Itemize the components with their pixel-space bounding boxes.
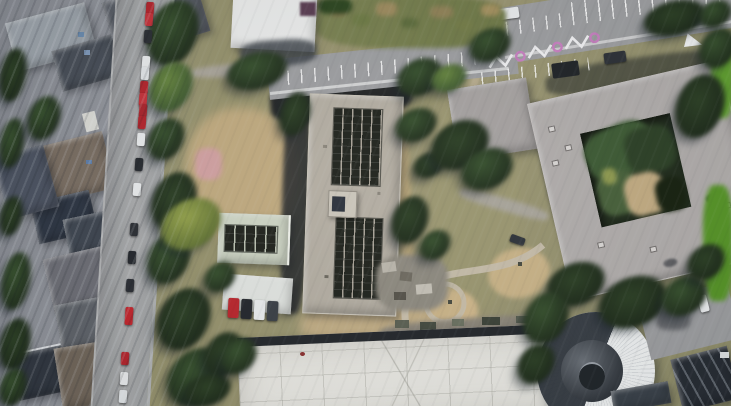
skylight [78,32,84,37]
roof-detail [300,2,316,16]
roof-vent [324,275,328,278]
parked-car [130,223,139,237]
pink-ground-spot [195,148,222,180]
garden-plot [401,18,418,28]
roof-vent [564,144,572,151]
garden-plot [456,20,473,30]
parked-car [144,30,153,44]
junk [482,317,500,325]
solar-array-top [332,108,383,186]
parked-car [128,251,137,265]
junk [452,319,464,326]
courtyard [580,113,691,227]
roof-vent [323,145,327,148]
skylight [86,160,92,164]
roof-vent [551,159,559,166]
lawn-strip [703,185,731,301]
parked-car [133,183,142,197]
parked-car [138,116,147,130]
tree [154,285,214,354]
shed [381,261,396,273]
parked-car [135,158,144,172]
garden-plot [376,2,397,16]
parked-car [145,13,154,27]
parked-car [266,301,278,322]
parked-car [253,300,265,321]
garden-plot [352,14,371,26]
parked-car [120,372,129,386]
small-solar-building [217,213,291,265]
play-equipment [448,300,452,304]
parked-car [119,390,128,404]
satellite-canvas [0,0,731,406]
penthouse-shadow [332,196,346,211]
roof-highlight [720,352,729,358]
junk [395,320,409,328]
parked-car [121,352,130,366]
roof-mark [663,257,678,268]
roof-vent [548,125,556,132]
parked-car [137,133,146,147]
parked-car [240,299,252,320]
solar-array-small [225,225,278,253]
garden-plot [481,4,500,16]
shed [394,292,406,300]
round-building-dome [579,362,605,390]
roof-vent [597,241,605,248]
shed [400,271,413,281]
roof-vent [649,246,657,253]
sports-court [318,0,352,14]
skylight [84,50,90,55]
rooftop-penthouse [328,190,358,218]
parked-car [141,67,150,81]
parked-car [124,307,133,326]
roof-mark-red [300,352,305,356]
garden-plot [430,6,453,18]
shed [416,283,433,294]
parked-car [227,298,239,319]
play-equipment [518,262,522,266]
parked-car [126,279,135,293]
roof-vent [377,192,380,195]
